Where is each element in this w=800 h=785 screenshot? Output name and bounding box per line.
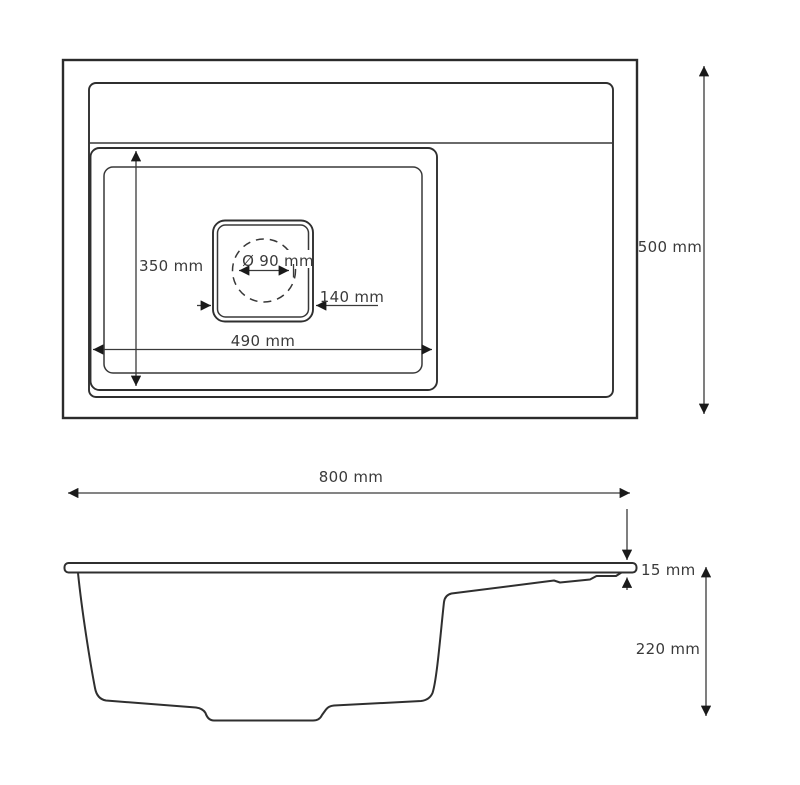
- dimension-800mm: 800 mm: [68, 468, 630, 493]
- side-view: 800 mm 15 mm 220 mm: [65, 468, 707, 721]
- label-overall-depth: 500 mm: [638, 238, 702, 256]
- label-bowl-width: 490 mm: [231, 332, 295, 350]
- top-view: 500 mm 350 mm Ø 90 mm 140 mm: [63, 60, 704, 418]
- sink-body-profile: [78, 573, 622, 721]
- label-rim-thickness: 15 mm: [641, 561, 696, 579]
- label-body-height: 220 mm: [636, 640, 700, 658]
- top-view-outer-edge: [63, 60, 637, 418]
- rim-profile: [65, 563, 637, 573]
- label-overall-width: 800 mm: [319, 468, 383, 486]
- dimension-220mm: 220 mm: [636, 567, 706, 716]
- dimension-15mm: 15 mm: [627, 509, 696, 590]
- label-bowl-depth: 350 mm: [139, 257, 203, 275]
- label-drain-flange-width: 140 mm: [320, 288, 384, 306]
- label-drain-diameter: Ø 90 mm: [242, 252, 314, 270]
- dimension-500mm: 500 mm: [638, 66, 704, 414]
- sink-dimension-drawing: 500 mm 350 mm Ø 90 mm 140 mm: [0, 0, 800, 785]
- technical-drawing-canvas: 500 mm 350 mm Ø 90 mm 140 mm: [0, 0, 800, 785]
